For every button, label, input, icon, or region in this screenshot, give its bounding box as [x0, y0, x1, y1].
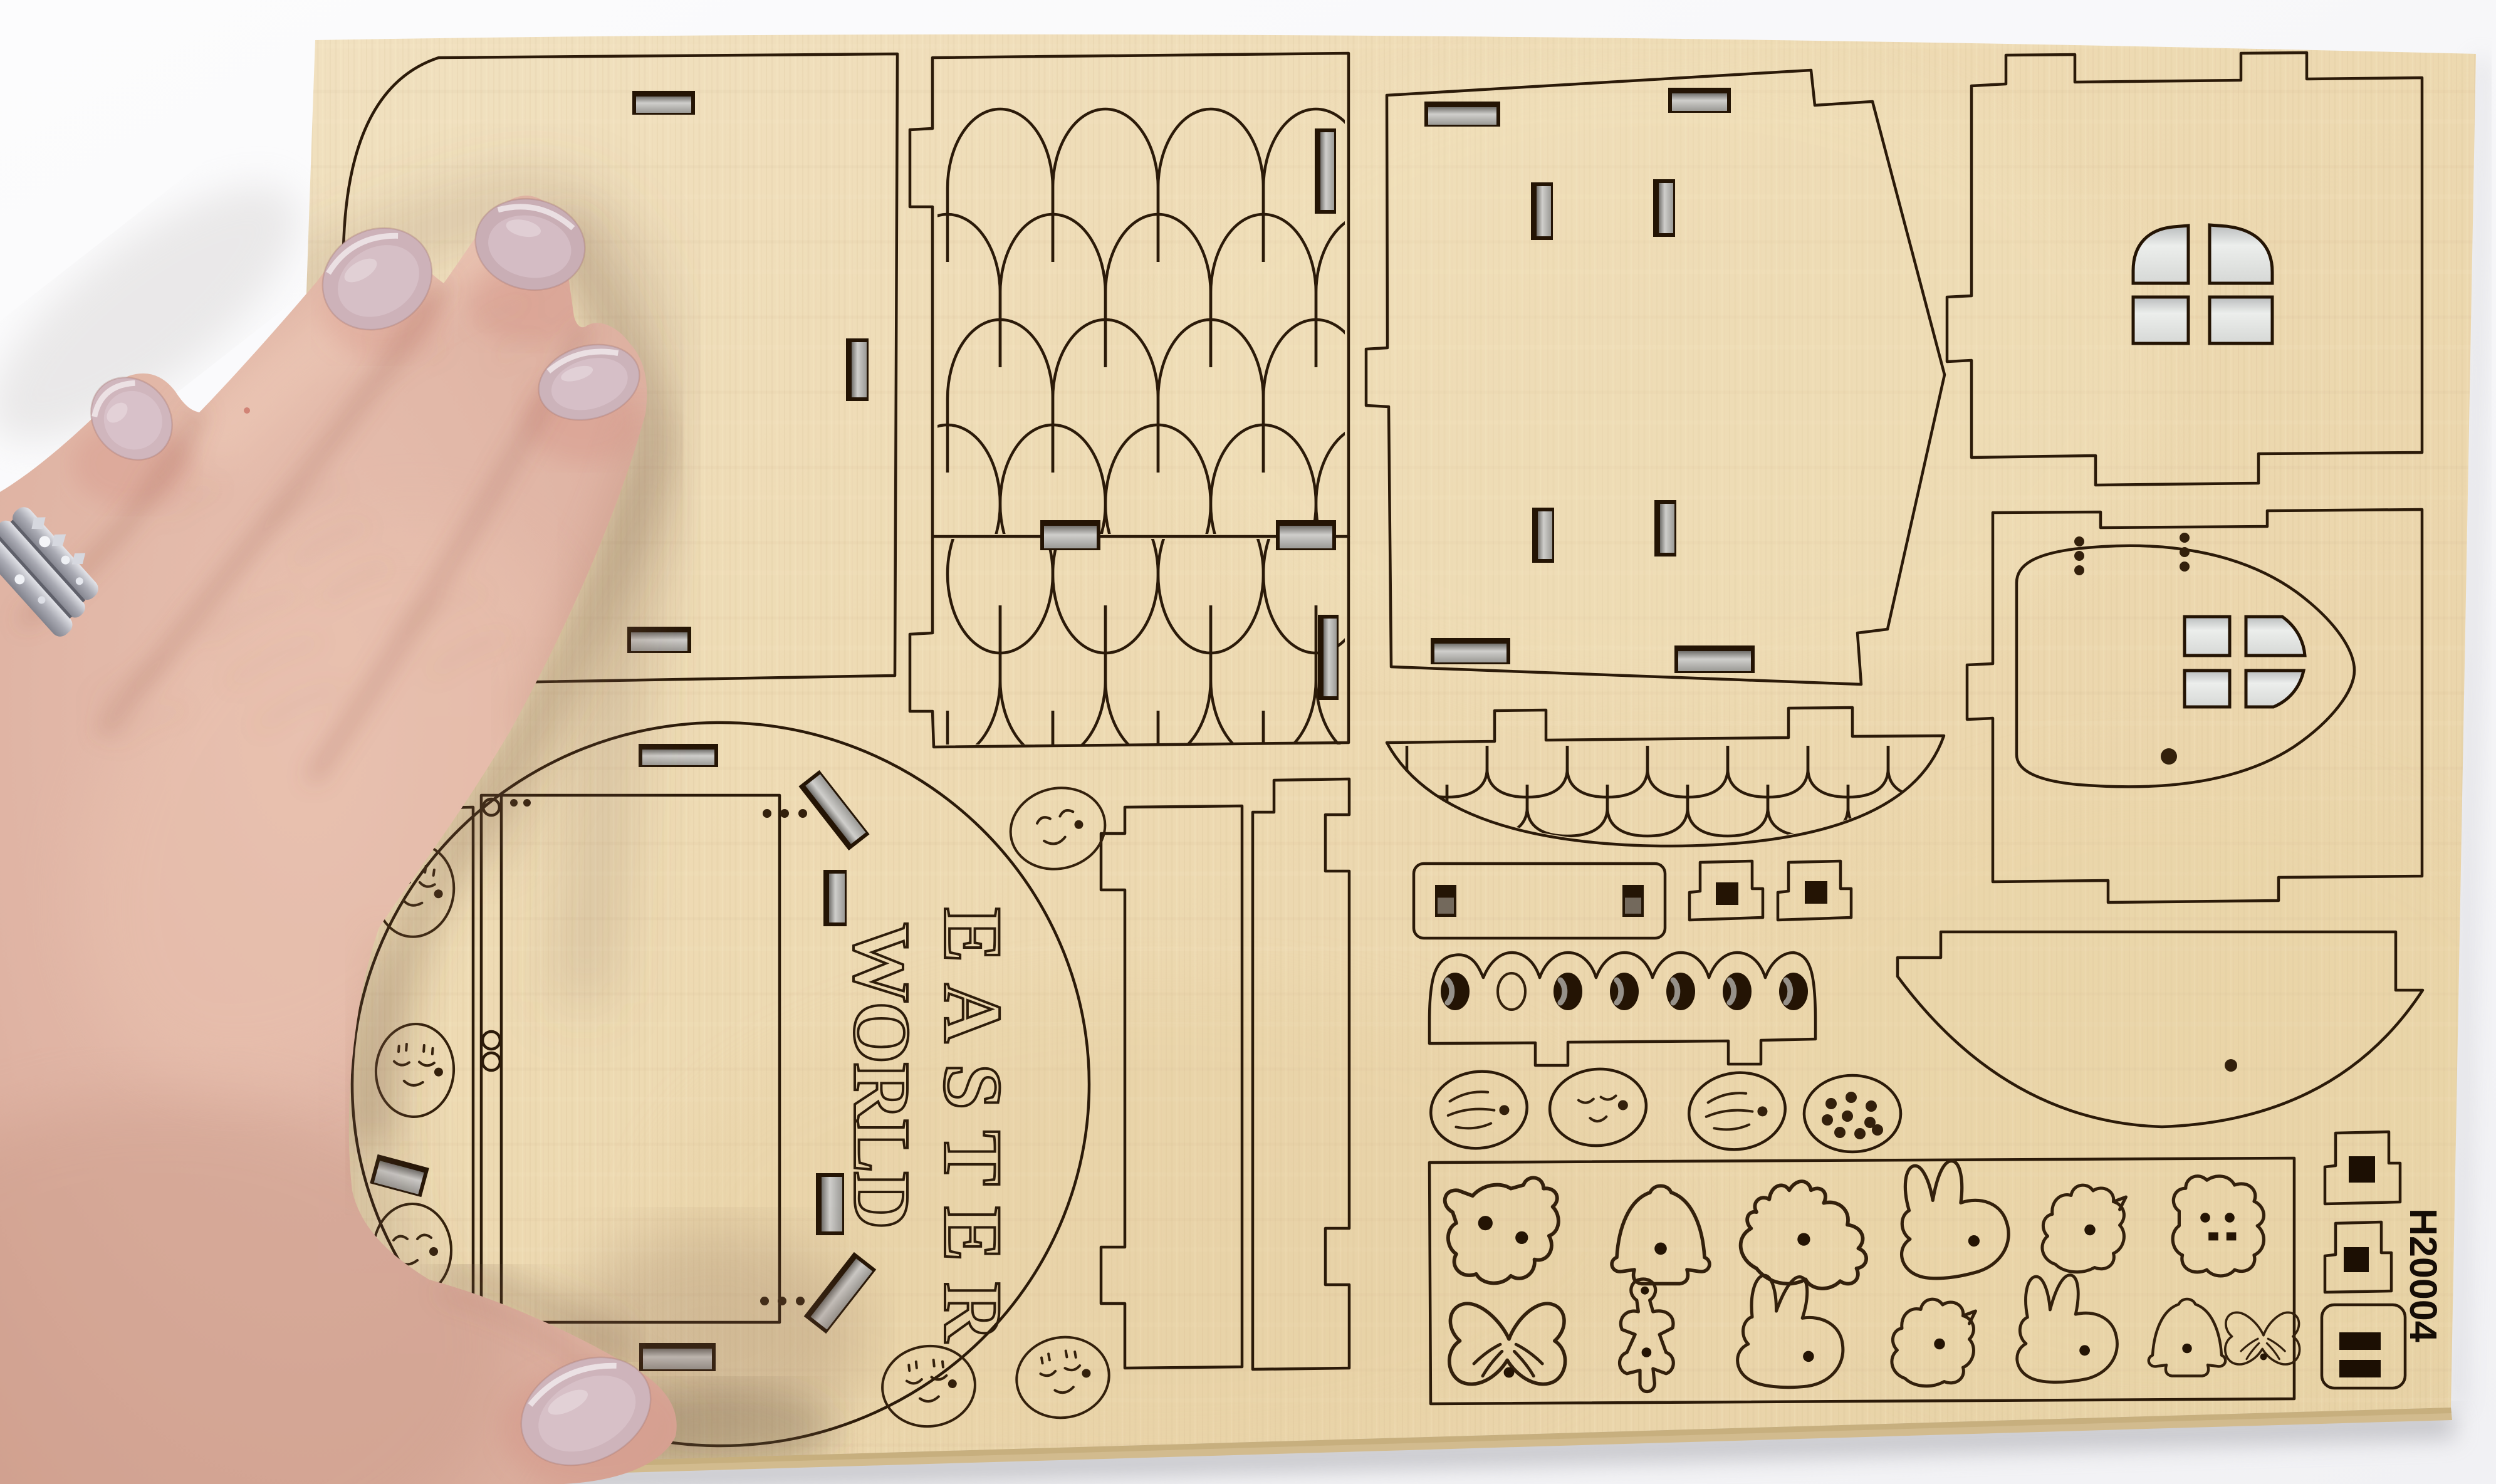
svg-text:WORLD: WORLD — [837, 922, 926, 1228]
svg-text:EASTER: EASTER — [927, 907, 1019, 1362]
svg-text:H20004: H20004 — [2402, 1208, 2445, 1342]
